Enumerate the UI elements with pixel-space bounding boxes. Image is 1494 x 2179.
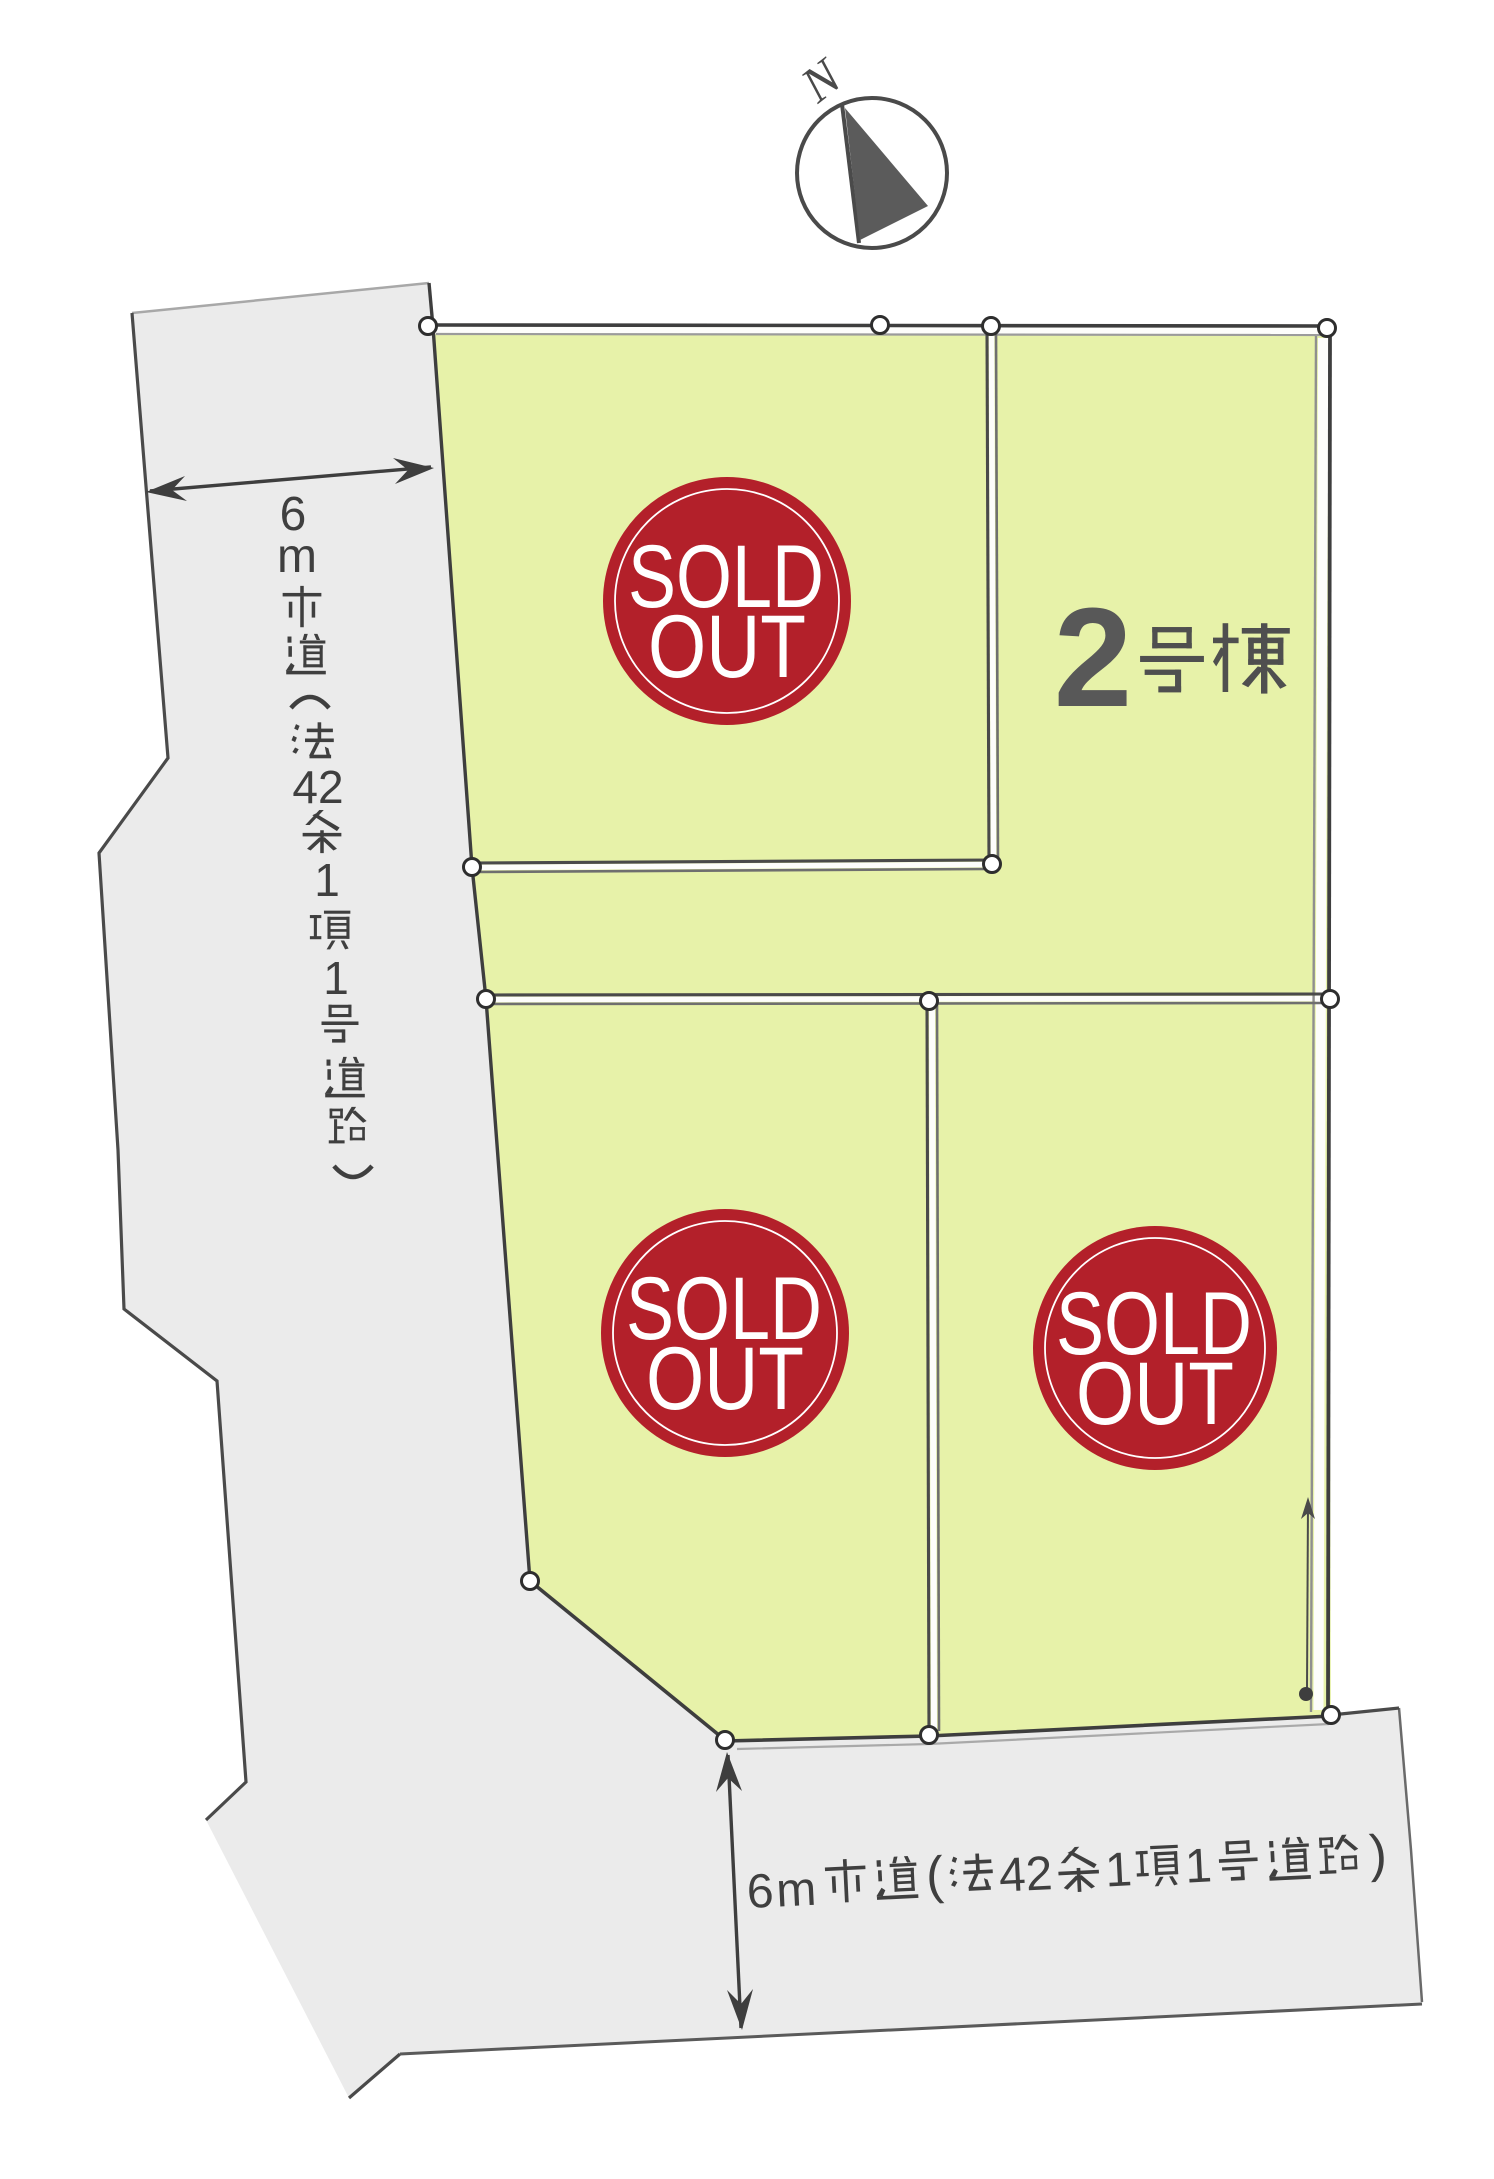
svg-text:OUT: OUT — [1076, 1343, 1234, 1443]
svg-text:1: 1 — [1104, 1843, 1133, 1897]
svg-text:OUT: OUT — [646, 1328, 804, 1428]
svg-text:42: 42 — [998, 1847, 1054, 1903]
svg-text:1: 1 — [323, 952, 349, 1004]
svg-text:OUT: OUT — [648, 596, 806, 696]
svg-text:m: m — [277, 530, 317, 583]
svg-text:1: 1 — [1184, 1839, 1213, 1893]
svg-text:m: m — [775, 1863, 818, 1918]
svg-text:6: 6 — [746, 1865, 775, 1919]
svg-text:2: 2 — [1054, 578, 1132, 736]
svg-text:42: 42 — [292, 761, 343, 813]
svg-text:1: 1 — [314, 854, 340, 906]
svg-text:(: ( — [925, 1846, 946, 1905]
svg-text:): ) — [1368, 1825, 1388, 1884]
